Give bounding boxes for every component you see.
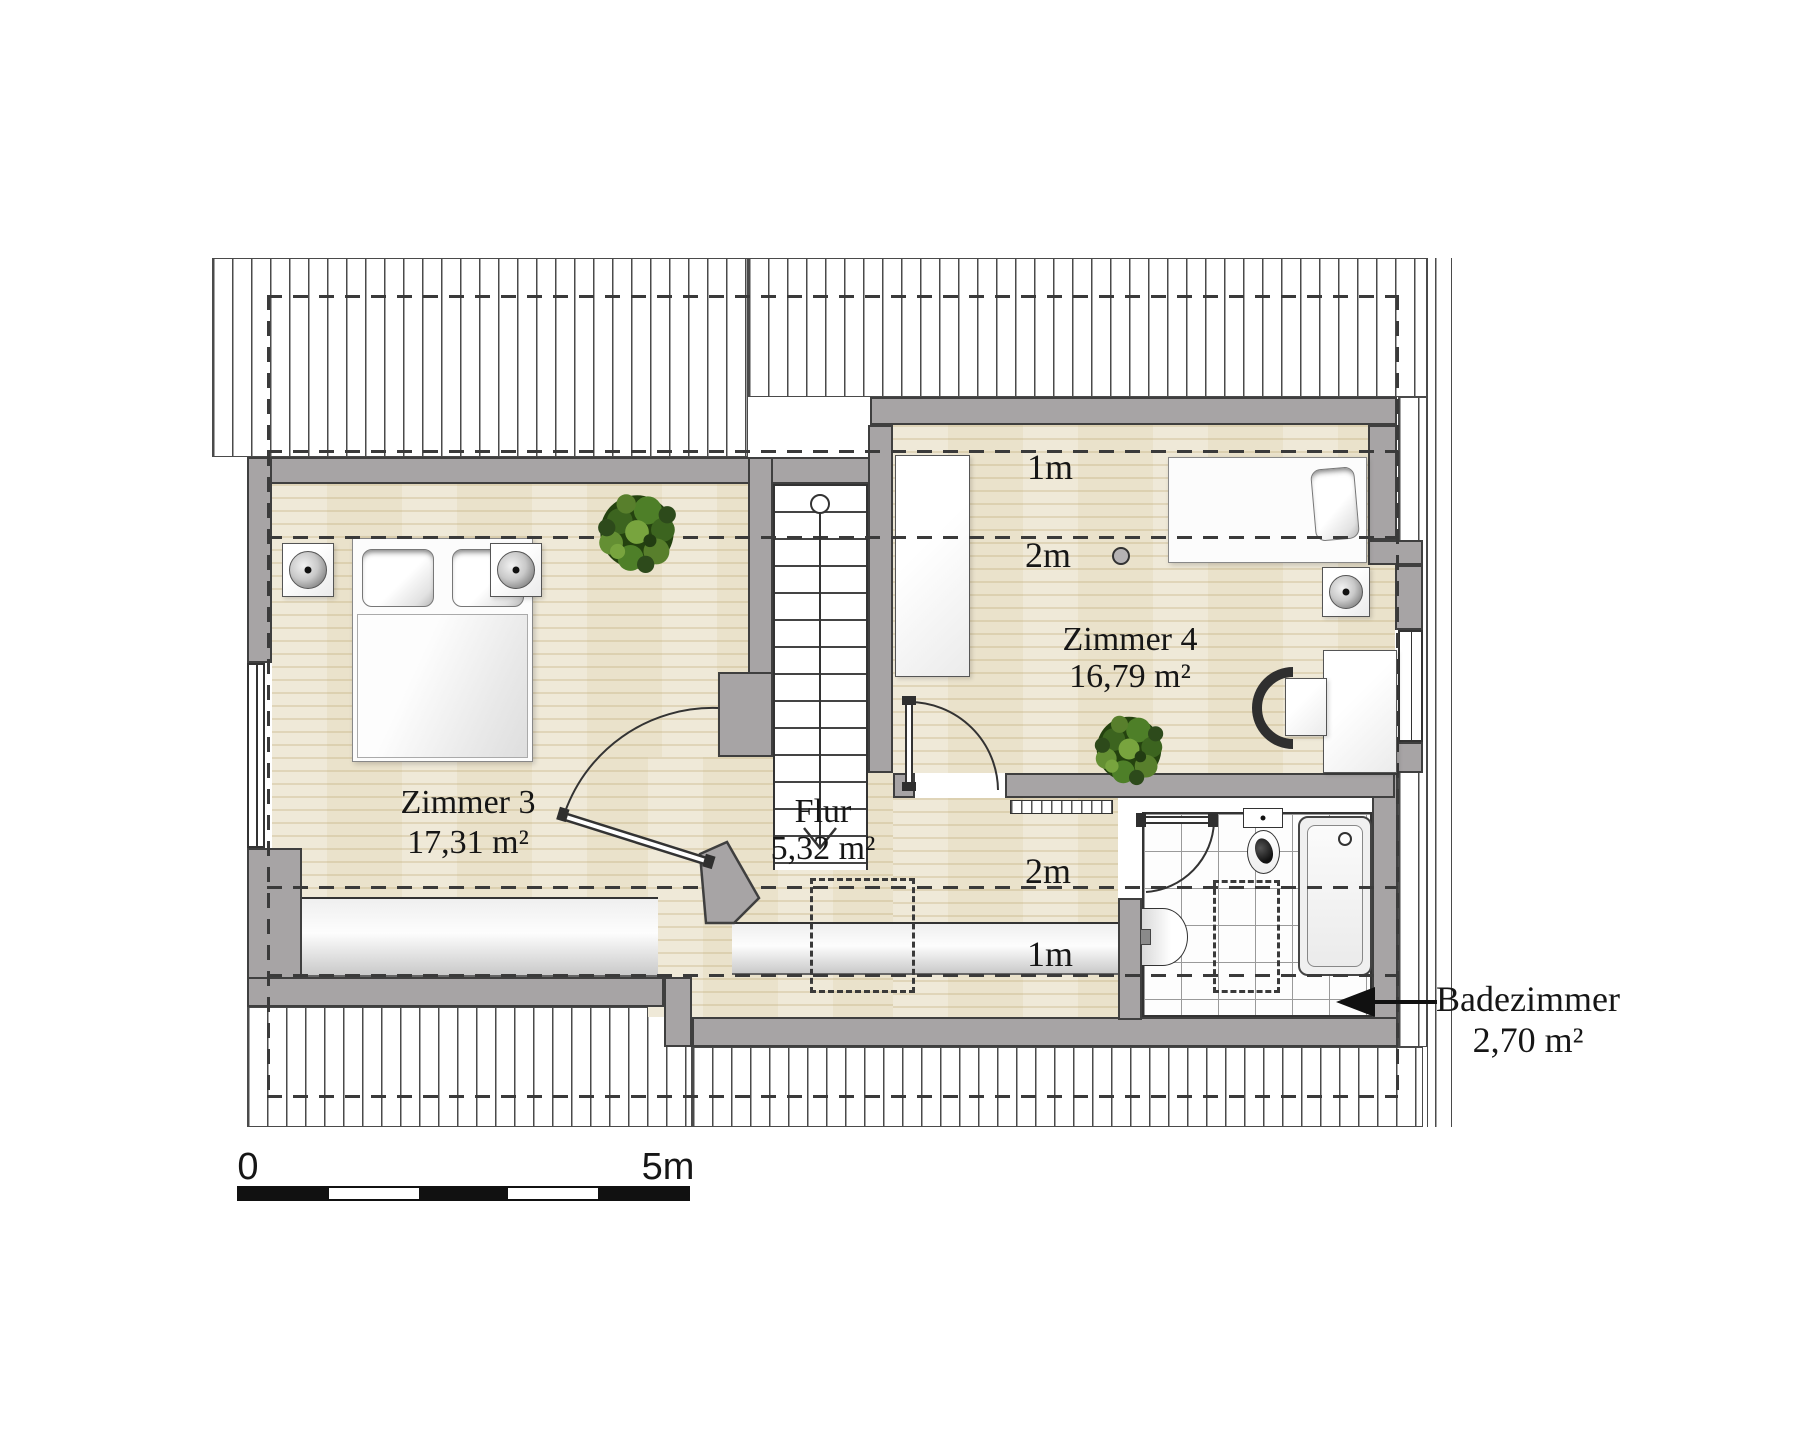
label-zimmer4-area: 16,79 m² xyxy=(1069,658,1191,696)
marker-1m-top: 1m xyxy=(1027,446,1073,488)
scale-segment xyxy=(239,1188,329,1199)
scale-segment xyxy=(329,1188,419,1199)
marker-1m-bottom: 1m xyxy=(1027,933,1073,975)
door-arc-bad xyxy=(1146,822,1214,892)
door-hinge-icon xyxy=(1136,813,1146,827)
scale-segment xyxy=(598,1188,688,1199)
door-arc-zimmer4 xyxy=(909,702,998,790)
floor-plan-canvas: Zimmer 3 17,31 m² Flur 5,32 m² Zimmer 4 … xyxy=(0,0,1819,1440)
label-zimmer4-name: Zimmer 4 xyxy=(1062,621,1197,659)
scale-segment xyxy=(508,1188,598,1199)
door-hinge-icon xyxy=(902,696,916,705)
marker-2m-bottom: 2m xyxy=(1025,850,1071,892)
label-flur-area: 5,32 m² xyxy=(771,830,876,868)
plant-zimmer3 xyxy=(598,494,676,573)
plan-overlay-graphics xyxy=(0,0,1819,1440)
scale-start-label: 0 xyxy=(237,1146,258,1189)
label-flur-name: Flur xyxy=(795,793,852,831)
door-hinge-icon xyxy=(902,782,916,791)
scale-segment xyxy=(419,1188,509,1199)
wall-diagonal-pier xyxy=(700,842,759,923)
label-zimmer3-name: Zimmer 3 xyxy=(400,784,535,822)
door-leaf-zimmer3-inner xyxy=(566,817,712,863)
chair-back-arc xyxy=(1257,672,1293,744)
door-hinge-icon xyxy=(1208,813,1218,827)
badezimmer-arrow-icon xyxy=(1336,987,1375,1017)
label-zimmer3-area: 17,31 m² xyxy=(407,824,529,862)
door-arc-zimmer3 xyxy=(563,708,718,818)
stair-start-circle-icon xyxy=(811,495,829,513)
scale-bar xyxy=(237,1186,690,1201)
label-badezimmer-area: 2,70 m² xyxy=(1473,1019,1584,1061)
label-badezimmer-name: Badezimmer xyxy=(1436,978,1620,1020)
plant-zimmer4 xyxy=(1095,716,1163,785)
marker-2m-top: 2m xyxy=(1025,534,1071,576)
scale-end-label: 5m xyxy=(642,1146,695,1189)
